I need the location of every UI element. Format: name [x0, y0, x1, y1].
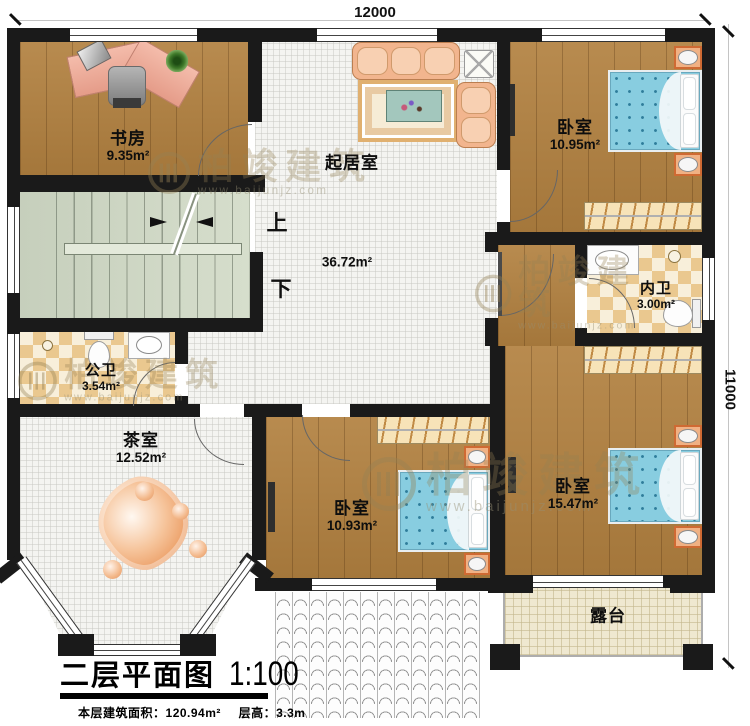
tv [268, 482, 275, 532]
room-area: 15.47m² [548, 496, 598, 511]
sofa-side [456, 82, 496, 148]
side-table [464, 50, 494, 78]
bed [398, 470, 490, 552]
room-label-living: 起居室 [325, 153, 379, 172]
wardrobe [584, 346, 702, 374]
stone-ball [135, 482, 154, 501]
potted-plant [166, 50, 188, 72]
plan-stats: 本层建筑面积：120.94m² 层高：3.3m [78, 704, 305, 721]
bed [608, 448, 702, 524]
nightstand [674, 526, 702, 548]
room-label-inner-bath: 内卫 3.00m² [637, 281, 675, 311]
stone-ball [103, 560, 122, 579]
sofa-main [352, 42, 460, 80]
wall [485, 318, 498, 346]
window [7, 334, 20, 398]
tv [508, 457, 516, 493]
plan-title: 二层平面图 [60, 652, 215, 694]
wall [497, 222, 510, 232]
nightstand [464, 446, 490, 468]
wall [7, 28, 20, 560]
window [542, 28, 665, 42]
dimension-line-right [728, 24, 729, 668]
room-name: 起居室 [325, 153, 379, 172]
floor-drain [668, 250, 681, 263]
pillow [683, 488, 696, 518]
stair-arrow-icon [150, 217, 167, 227]
sofa-cushion [424, 47, 455, 75]
blanket-fold [659, 72, 681, 150]
room-name: 茶室 [116, 431, 166, 450]
sofa-cushion [357, 47, 388, 75]
toilet-tank [692, 299, 701, 328]
toilet-tank [84, 331, 114, 340]
stone-ball [172, 503, 189, 520]
pillow [471, 477, 484, 510]
room-label-public-bath: 公卫 3.54m² [82, 363, 120, 393]
nightstand [674, 46, 702, 69]
wall [248, 42, 262, 122]
wall [497, 42, 510, 170]
sink-basin [136, 336, 162, 354]
blanket-fold [447, 472, 469, 550]
door-leaf [498, 252, 502, 316]
wall [175, 396, 188, 405]
room-area: 36.72m² [322, 254, 372, 269]
terrace-post [670, 578, 715, 593]
nightstand [674, 425, 702, 447]
room-area-living: 36.72m² [322, 254, 372, 269]
stone-ball [189, 540, 207, 558]
floor-area-label: 本层建筑面积： [78, 706, 166, 720]
sofa-cushion [461, 117, 491, 144]
terrace-post [683, 644, 713, 670]
title-underline [60, 693, 268, 699]
stair-handrail [64, 243, 242, 255]
wall [252, 417, 266, 560]
plan-scale: 1:100 [229, 655, 299, 694]
wardrobe [584, 202, 702, 230]
wall [575, 333, 715, 346]
pillows [468, 474, 487, 548]
nightstand [464, 553, 490, 575]
room-area: 3.00m² [637, 298, 675, 311]
terrace-post [488, 578, 533, 593]
floor-drain [42, 340, 53, 351]
stair-down-label: 下 [271, 273, 292, 303]
room-area: 3.54m² [82, 380, 120, 393]
room-area: 10.93m² [327, 518, 377, 533]
floor-height-label: 层高： [239, 706, 277, 720]
chair-base [113, 98, 141, 108]
wall [175, 332, 188, 364]
room-label-terrace: 露台 [590, 606, 626, 625]
window [312, 578, 436, 591]
room-name: 卧室 [327, 499, 377, 518]
wall [350, 404, 505, 417]
room-name: 卧室 [550, 118, 600, 137]
room-name: 公卫 [82, 363, 120, 380]
room-area: 10.95m² [550, 137, 600, 152]
pillows [680, 74, 699, 148]
wall [255, 404, 302, 417]
title-block: 二层平面图 1:100 [60, 652, 314, 694]
coffee-table [386, 90, 442, 122]
room-label-tea-room: 茶室 12.52m² [116, 431, 166, 465]
window [7, 207, 20, 293]
room-label-bedroom-bottom-right: 卧室 15.47m² [548, 477, 598, 511]
pillow [683, 77, 696, 110]
pillows [680, 452, 699, 520]
wall [7, 318, 263, 332]
wall [490, 346, 505, 578]
floor-area-value: 120.94m² [166, 706, 221, 720]
blanket-fold [659, 450, 681, 522]
pillow [683, 455, 696, 485]
room-area: 12.52m² [116, 450, 166, 465]
pillow [683, 113, 696, 146]
window [317, 28, 437, 42]
room-name: 露台 [590, 606, 626, 625]
window [533, 575, 663, 588]
room-name: 书房 [107, 129, 150, 148]
window [70, 28, 197, 42]
wall [7, 175, 265, 192]
floor-height-value: 3.3m [276, 706, 305, 720]
sink-basin [595, 250, 629, 270]
window [702, 258, 715, 320]
nightstand [674, 153, 702, 176]
terrace-post [490, 644, 520, 670]
room-label-bedroom-bottom-center: 卧室 10.93m² [327, 499, 377, 533]
bed [608, 70, 702, 152]
room-label-bedroom-top-right: 卧室 10.95m² [550, 118, 600, 152]
sofa-cushion [391, 47, 422, 75]
wall [575, 245, 587, 278]
dimension-right-label: 11000 [722, 360, 739, 420]
stair-arrow-icon [196, 217, 213, 227]
dimension-top-label: 12000 [340, 4, 410, 21]
room-name: 内卫 [637, 281, 675, 298]
room-name: 卧室 [548, 477, 598, 496]
room-label-study: 书房 9.35m² [107, 129, 150, 163]
sofa-cushion [461, 87, 491, 114]
pillow [471, 513, 484, 546]
wardrobe [377, 416, 489, 444]
room-area: 9.35m² [107, 148, 150, 163]
floor-plan-page: { "plan": { "dim_top": "12000", "dim_rig… [0, 0, 750, 726]
wall [485, 232, 715, 245]
stair-up-label: 上 [267, 207, 288, 237]
living-corridor-floor [188, 332, 255, 404]
stair-treads [56, 192, 250, 318]
